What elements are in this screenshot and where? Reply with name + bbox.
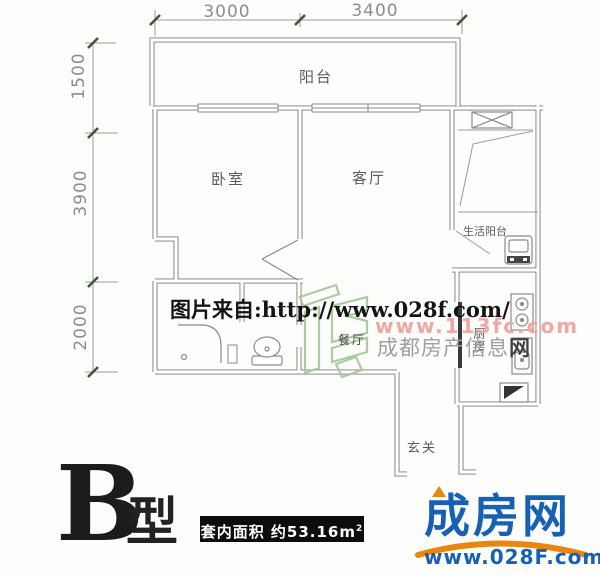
shaft-slope-lines (458, 130, 538, 212)
room-label-living: 客厅 (339, 167, 399, 188)
room-label-entry: 玄关 (398, 437, 446, 456)
toilet-icon (252, 337, 282, 365)
dim-left-3900: 3900 (73, 163, 89, 223)
site-logo-url: www.028F.com (424, 545, 588, 569)
bedroom-door-swing (262, 240, 298, 280)
area-badge-sup: 2 (356, 524, 363, 534)
washing-machine-icon (505, 236, 532, 264)
watermark-gray-suffix: 网 (509, 336, 531, 360)
dim-left-2000: 2000 (73, 297, 89, 357)
fridge-icon (500, 383, 528, 402)
bathroom-door-jamb (228, 345, 237, 363)
shower-icon (178, 325, 221, 363)
site-logo-name: 成房网 (424, 493, 571, 539)
floorplan-page: 3000 3400 1500 3900 2000 阳台 卧室 客厅 餐厅 生活阳… (0, 0, 600, 575)
room-label-bedroom: 卧室 (198, 168, 258, 189)
dim-top-3000: 3000 (194, 2, 260, 22)
room-label-dining: 餐厅 (330, 331, 374, 348)
watermark-gray-name: 成都房产信息网 (377, 332, 531, 362)
watermark-gray-name-text: 成都房产信息 (377, 336, 509, 360)
dim-top-3400: 3400 (342, 1, 408, 21)
dim-left-1500: 1500 (71, 46, 87, 106)
area-badge: 套内面积 约53.16m2 (200, 516, 364, 542)
room-label-service-balcony: 生活阳台 (455, 223, 515, 239)
watermark-source-text: 图片来自:http://www.028f.com/ (170, 294, 510, 324)
flue-box-icon (472, 112, 512, 128)
room-label-balcony: 阳台 (286, 66, 346, 87)
unit-type-word: 型 (126, 497, 178, 549)
area-badge-text: 套内面积 约53.16m (201, 523, 356, 541)
